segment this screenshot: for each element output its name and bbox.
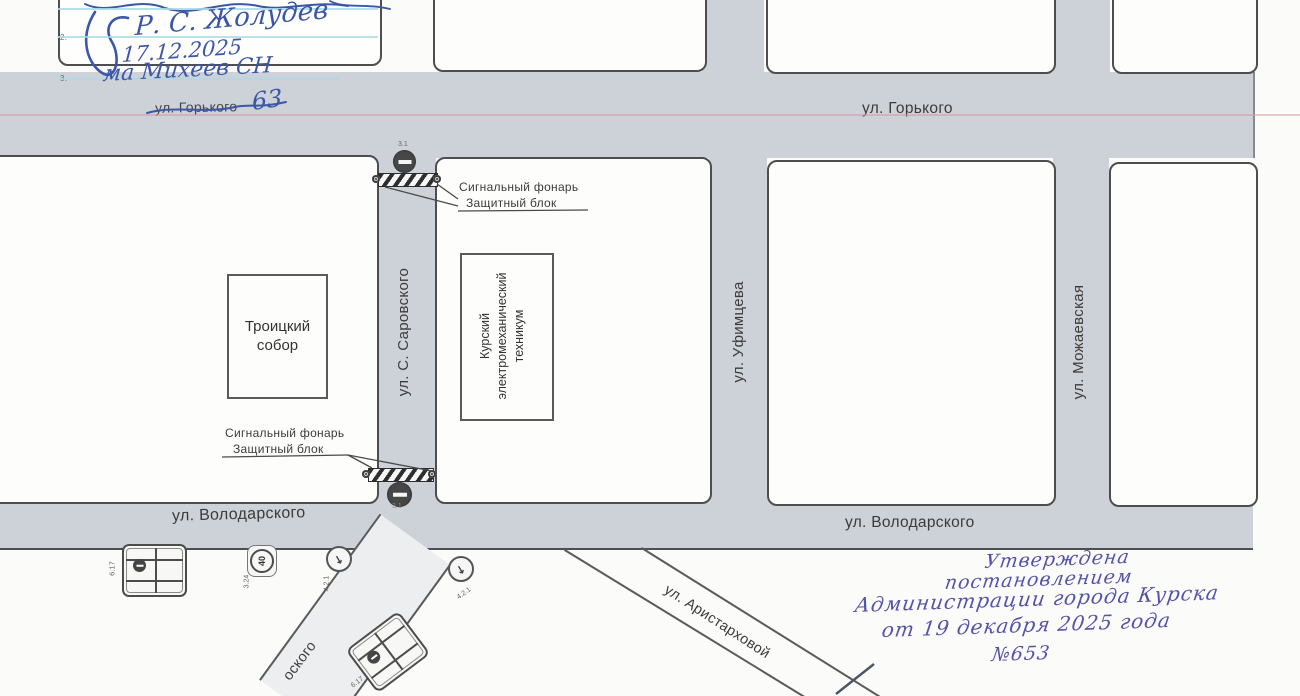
signal-lamp-dot-icon — [428, 470, 436, 478]
college-label-line2: электромеханический — [494, 251, 511, 421]
callout-protective-block-top: Защитный блок — [466, 196, 557, 210]
road-ufimtseva-north — [702, 0, 764, 100]
cathedral-label-line1: Троицкий — [245, 318, 310, 337]
speed-limit-sign-icon: 40 — [247, 545, 277, 577]
scanned-street-map: Троицкий собор Курский электромеханическ… — [0, 0, 1300, 696]
signal-lamp-dot-icon — [433, 175, 441, 183]
protective-block-barrier-bottom-icon — [368, 468, 434, 482]
handwritten-house-number: 63 — [252, 84, 283, 116]
road-mozhaevskaya-north — [1053, 0, 1110, 100]
street-label-volodarskogo-left: ул. Володарского — [172, 504, 306, 525]
college-label-line1: Курский — [477, 251, 494, 421]
block-middle-4 — [1109, 162, 1258, 507]
block-middle-3 — [767, 160, 1056, 506]
street-label-volodarskogo-right: ул. Володарского — [845, 514, 975, 532]
detour-direction-sign-icon: ↘ — [448, 556, 474, 582]
detour-arrow-glyph: ↘ — [333, 552, 345, 567]
signal-lamp-dot-icon — [362, 470, 370, 478]
signal-lamp-dot-icon — [372, 175, 380, 183]
cathedral-box: Троицкий собор — [227, 274, 328, 399]
margin-number-2: 2. — [60, 33, 67, 42]
block-top-2 — [433, 0, 707, 72]
no-entry-code-top: 3.1 — [398, 141, 408, 148]
street-label-sarovskogo: ул. С. Саровского — [395, 247, 413, 417]
no-entry-code-bottom: 3.1 — [392, 503, 402, 510]
callout-signal-lamp-bottom: Сигнальный фонарь — [225, 426, 344, 440]
street-label-aristarkhovoy: ул. Аристарховой — [646, 572, 789, 673]
block-top-4 — [1112, 0, 1258, 74]
detour-direction-code: 4.2.1 — [324, 569, 331, 599]
street-label-mozhaevskaya: ул. Можаевская — [1070, 267, 1088, 417]
detour-arrow-glyph: ↘ — [455, 562, 467, 577]
college-label: Курский электромеханический техникум — [477, 251, 533, 421]
street-label-gorkogo: ул. Горького — [862, 100, 953, 118]
callout-signal-lamp-top: Сигнальный фонарь — [459, 180, 578, 194]
detour-scheme-sign-icon — [122, 544, 187, 597]
street-label-ufimtseva: ул. Уфимцева — [730, 262, 748, 402]
speed-limit-value: 40 — [257, 556, 267, 566]
approval-note-line5: №653 — [990, 642, 1051, 666]
protective-block-barrier-top-icon — [378, 173, 438, 187]
aristarkhovoy-edge-lower — [564, 549, 806, 696]
speed-limit-code: 3.24 — [244, 567, 251, 597]
aristarkhovoy-edge-upper — [641, 547, 881, 696]
detour-scheme-code: 6.17 — [108, 554, 117, 584]
no-entry-sign-icon — [393, 150, 416, 173]
street-label-gorkogo-left: ул. Горького — [155, 98, 238, 115]
cathedral-label-line2: собор — [257, 337, 298, 356]
college-label-line3: техникум — [511, 251, 528, 421]
block-top-3 — [766, 0, 1056, 74]
margin-number-3: 3. — [60, 74, 67, 83]
callout-protective-block-bottom: Защитный блок — [233, 442, 324, 456]
